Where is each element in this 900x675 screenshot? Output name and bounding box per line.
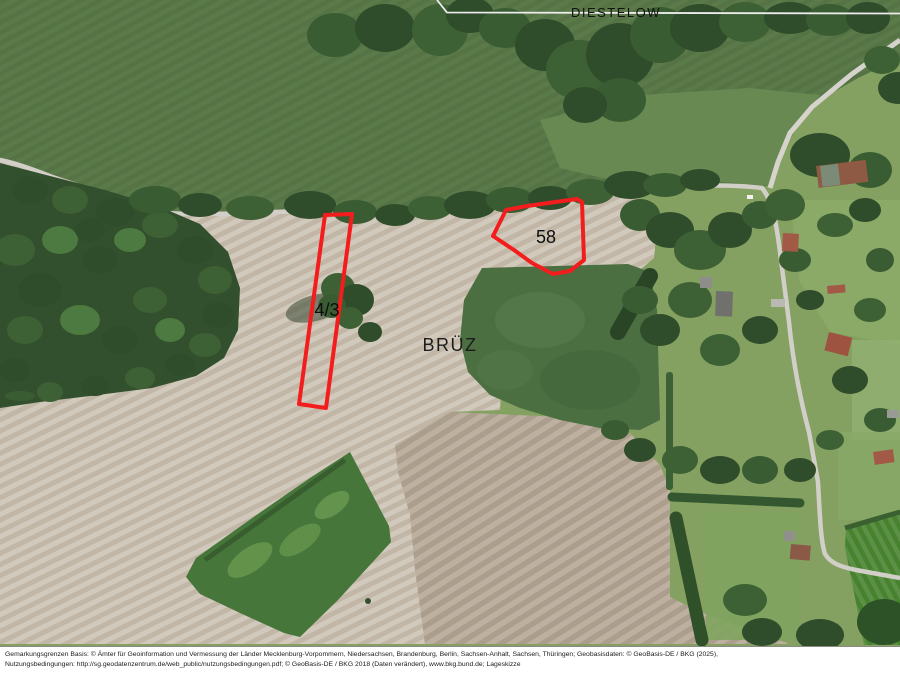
church-tower: [820, 164, 840, 187]
building-marker: [887, 410, 899, 418]
building-marker: [873, 449, 895, 465]
building-marker: [771, 299, 785, 307]
vehicle: [747, 195, 753, 199]
attribution-footer: Gemarkungsgrenzen Basis: © Ämter für Geo…: [0, 646, 900, 675]
building-marker: [827, 284, 846, 294]
building-marker: [782, 233, 799, 252]
building-marker: [715, 291, 733, 317]
place-label: BRÜZ: [423, 335, 478, 355]
building-marker: [790, 544, 811, 561]
building-marker: [700, 277, 712, 288]
aerial-map: DIESTELOW BRÜZ 58 4/3: [0, 0, 900, 646]
parcel-label-4-3: 4/3: [314, 300, 339, 320]
building-marker: [784, 531, 795, 541]
lageskizze-screenshot: DIESTELOW BRÜZ 58 4/3 Gemarkungsgrenzen …: [0, 0, 900, 675]
gemarkung-label: DIESTELOW: [571, 5, 661, 20]
attribution-line-1: Gemarkungsgrenzen Basis: © Ämter für Geo…: [5, 650, 900, 660]
attribution-line-2: Nutzungsbedingungen: http://sg.geodatenz…: [5, 660, 900, 670]
parcel-label-58: 58: [536, 227, 556, 247]
